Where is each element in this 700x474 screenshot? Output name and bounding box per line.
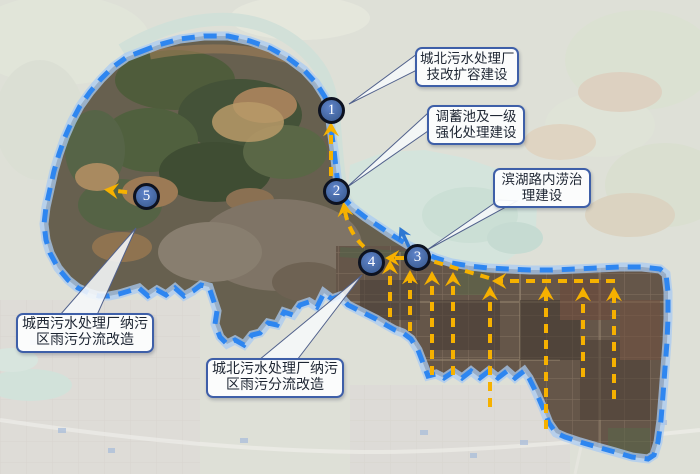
map-marker-1: 1 bbox=[318, 97, 345, 124]
callout-text-line: 区雨污分流改造 bbox=[211, 378, 339, 394]
callout-north-plant-diversion: 城北污水处理厂纳污 区雨污分流改造 bbox=[206, 358, 344, 398]
annotated-satellite-map: 1 2 3 4 5 城北污水处理厂 技改扩容建设 调蓄池及一级 强化处理建设 滨… bbox=[0, 0, 700, 474]
map-marker-4: 4 bbox=[358, 249, 385, 276]
map-marker-5: 5 bbox=[133, 183, 160, 210]
callout-storage-tank-treatment: 调蓄池及一级 强化处理建设 bbox=[427, 105, 525, 145]
callout-text-line: 理建设 bbox=[498, 188, 586, 204]
callout-west-plant-diversion: 城西污水处理厂纳污 区雨污分流改造 bbox=[16, 313, 154, 353]
callout-text-line: 滨湖路内涝治 bbox=[498, 172, 586, 188]
satellite-map-canvas bbox=[0, 0, 700, 474]
callout-text-line: 城北污水处理厂 bbox=[420, 51, 514, 67]
map-marker-2: 2 bbox=[323, 178, 350, 205]
callout-text-line: 技改扩容建设 bbox=[420, 67, 514, 83]
callout-text-line: 城北污水处理厂纳污 bbox=[211, 362, 339, 378]
callout-text-line: 区雨污分流改造 bbox=[21, 333, 149, 349]
callout-text-line: 强化处理建设 bbox=[432, 125, 520, 141]
callout-text-line: 调蓄池及一级 bbox=[432, 109, 520, 125]
map-marker-3: 3 bbox=[404, 244, 431, 271]
callout-north-plant-upgrade: 城北污水处理厂 技改扩容建设 bbox=[415, 47, 519, 87]
callout-text-line: 城西污水处理厂纳污 bbox=[21, 317, 149, 333]
callout-binhu-road-flood: 滨湖路内涝治 理建设 bbox=[493, 168, 591, 208]
